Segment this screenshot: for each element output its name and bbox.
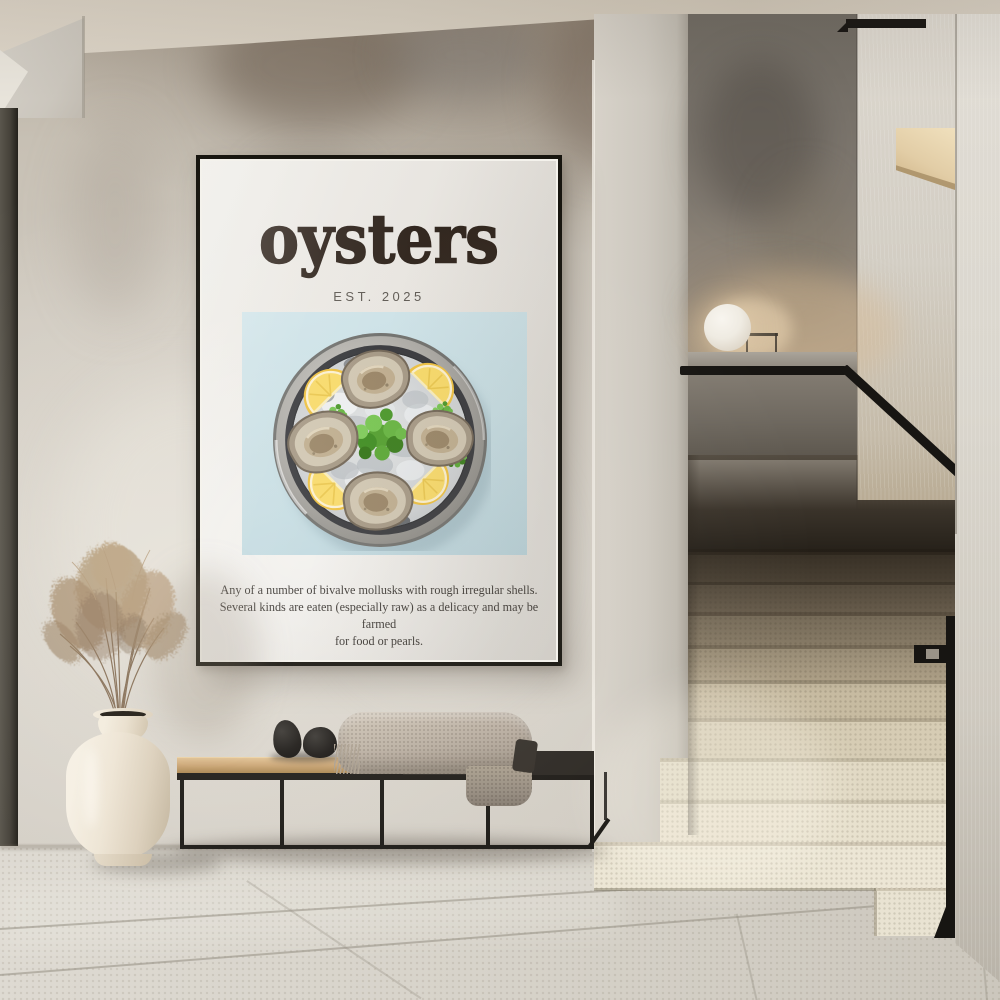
dried-pampas-grass (12, 530, 224, 726)
doorway-frame (0, 108, 18, 938)
grass-plumes (36, 542, 195, 670)
poster-frame: oysters EST. 2025 (196, 155, 562, 666)
soffit-edge (82, 16, 85, 118)
poster-glass-sheen (202, 161, 556, 660)
interior-scene: oysters EST. 2025 (0, 0, 1000, 1000)
vase-shadow (92, 852, 222, 874)
bench-shadow (172, 838, 608, 864)
right-wall-edge (955, 14, 957, 534)
wall-stain (70, 120, 160, 320)
poster-paper: oysters EST. 2025 (200, 159, 558, 662)
wall-stain (545, 0, 675, 170)
right-wall (955, 14, 1000, 1000)
